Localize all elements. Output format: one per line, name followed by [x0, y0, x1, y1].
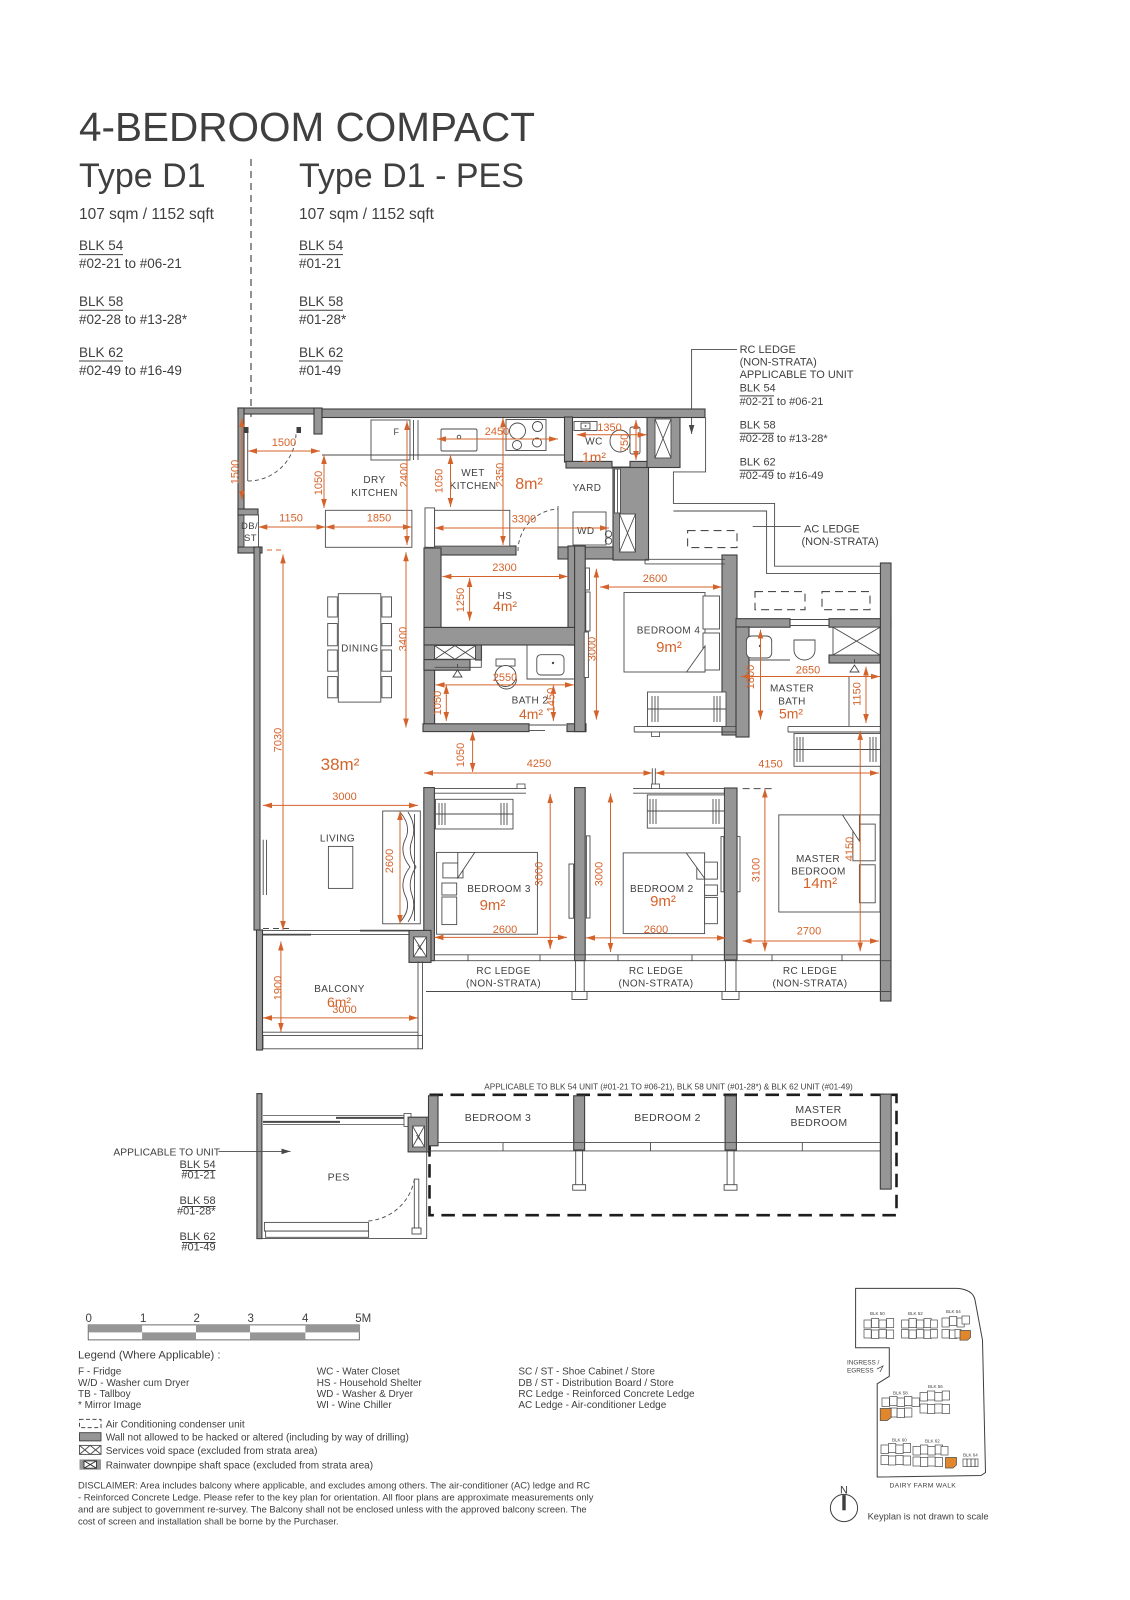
svg-text:SC / ST - Shoe Cabinet / Store: SC / ST - Shoe Cabinet / Store — [518, 1367, 655, 1378]
svg-text:BLK 54: BLK 54 — [79, 238, 124, 253]
svg-text:14m²: 14m² — [803, 875, 837, 892]
svg-text:AC Ledge - Air-conditioner Led: AC Ledge - Air-conditioner Ledge — [518, 1400, 666, 1411]
svg-text:MASTER: MASTER — [795, 1104, 841, 1116]
svg-text:BLK 54: BLK 54 — [299, 238, 344, 253]
svg-text:107 sqm / 1152 sqft: 107 sqm / 1152 sqft — [299, 206, 435, 223]
svg-text:3: 3 — [248, 1313, 254, 1325]
svg-text:(NON-STRATA): (NON-STRATA) — [773, 979, 848, 990]
svg-text:WD - Washer & Dryer: WD - Washer & Dryer — [317, 1389, 414, 1400]
svg-text:2400: 2400 — [399, 463, 411, 487]
svg-text:4m²: 4m² — [519, 706, 543, 722]
svg-text:1500: 1500 — [272, 437, 296, 449]
svg-text:#01-49: #01-49 — [299, 363, 341, 378]
svg-text:38m²: 38m² — [321, 755, 360, 774]
svg-text:4250: 4250 — [527, 758, 551, 770]
svg-text:1: 1 — [140, 1313, 146, 1325]
svg-text:4150: 4150 — [758, 759, 782, 771]
svg-text:3000: 3000 — [587, 637, 599, 661]
svg-text:AC LEDGE: AC LEDGE — [804, 524, 860, 536]
svg-text:9m²: 9m² — [650, 893, 676, 910]
svg-text:LIVING: LIVING — [320, 834, 355, 845]
svg-text:BLK 60: BLK 60 — [892, 1438, 907, 1443]
svg-text:BLK 62: BLK 62 — [299, 345, 343, 360]
svg-text:4: 4 — [302, 1313, 309, 1325]
svg-text:BLK 54: BLK 54 — [740, 383, 776, 395]
svg-text:2600: 2600 — [384, 849, 396, 873]
svg-text:ST: ST — [244, 533, 257, 544]
svg-text:(NON-STRATA): (NON-STRATA) — [466, 979, 541, 990]
svg-text:2700: 2700 — [797, 926, 821, 938]
svg-text:2600: 2600 — [493, 924, 517, 936]
svg-text:KITCHEN: KITCHEN — [450, 481, 497, 492]
svg-text:3400: 3400 — [398, 627, 410, 651]
svg-text:INGRESS /: INGRESS / — [847, 1360, 880, 1367]
svg-text:750: 750 — [619, 434, 631, 452]
svg-text:#01-49: #01-49 — [181, 1242, 215, 1254]
svg-text:#01-28*: #01-28* — [299, 312, 347, 327]
svg-text:#01-28*: #01-28* — [177, 1206, 216, 1218]
svg-text:BLK 58: BLK 58 — [299, 294, 343, 309]
svg-text:BEDROOM 3: BEDROOM 3 — [465, 1112, 532, 1124]
svg-text:1050: 1050 — [313, 471, 325, 495]
svg-text:#02-28 to #13-28*: #02-28 to #13-28* — [79, 312, 188, 327]
svg-text:APPLICABLE TO UNIT: APPLICABLE TO UNIT — [740, 369, 854, 381]
svg-text:DINING: DINING — [341, 644, 378, 655]
svg-text:BLK 62: BLK 62 — [925, 1439, 940, 1444]
svg-text:3000: 3000 — [332, 791, 356, 803]
svg-text:(NON-STRATA): (NON-STRATA) — [740, 357, 817, 369]
svg-text:1250: 1250 — [455, 588, 467, 612]
svg-text:#01-21: #01-21 — [181, 1170, 215, 1182]
svg-text:3000: 3000 — [594, 862, 606, 886]
svg-text:1850: 1850 — [367, 513, 391, 525]
svg-text:#02-21 to #06-21: #02-21 to #06-21 — [740, 396, 824, 408]
svg-text:HS - Household Shelter: HS - Household Shelter — [317, 1378, 423, 1389]
svg-text:1050: 1050 — [455, 743, 467, 767]
svg-text:9m²: 9m² — [480, 897, 506, 914]
svg-text:1500: 1500 — [230, 460, 242, 484]
svg-text:F: F — [394, 427, 400, 437]
svg-text:#02-21 to #06-21: #02-21 to #06-21 — [79, 256, 182, 271]
svg-text:2450: 2450 — [485, 426, 509, 438]
svg-text:1350: 1350 — [597, 422, 621, 434]
svg-text:1m²: 1m² — [582, 449, 606, 465]
svg-text:1050: 1050 — [434, 469, 446, 493]
svg-text:X: X — [416, 1135, 421, 1142]
svg-text:KITCHEN: KITCHEN — [351, 488, 398, 499]
svg-text:9m²: 9m² — [656, 639, 682, 656]
svg-text:BLK 50: BLK 50 — [870, 1311, 885, 1316]
svg-text:EGRESS: EGRESS — [847, 1368, 874, 1375]
svg-text:RC LEDGE: RC LEDGE — [476, 966, 530, 977]
svg-text:BEDROOM 4: BEDROOM 4 — [637, 626, 701, 637]
svg-text:5M: 5M — [355, 1313, 371, 1325]
svg-text:(NON-STRATA): (NON-STRATA) — [619, 979, 694, 990]
svg-text:BLK 58: BLK 58 — [893, 1391, 908, 1396]
svg-text:Type D1 - PES: Type D1 - PES — [299, 157, 524, 195]
svg-text:N: N — [840, 1485, 848, 1497]
svg-text:BLK 52: BLK 52 — [908, 1311, 923, 1316]
svg-text:YARD: YARD — [573, 483, 602, 494]
svg-text:DB/: DB/ — [241, 521, 258, 532]
svg-text:1150: 1150 — [279, 513, 303, 525]
svg-text:2600: 2600 — [644, 924, 668, 936]
svg-text:3000: 3000 — [534, 862, 546, 886]
svg-text:BEDROOM: BEDROOM — [790, 1117, 847, 1129]
svg-text:WC - Water Closet: WC - Water Closet — [317, 1367, 400, 1378]
svg-text:PES: PES — [328, 1172, 350, 1184]
svg-text:RC LEDGE: RC LEDGE — [783, 966, 837, 977]
svg-text:DRY: DRY — [363, 475, 385, 486]
svg-text:1050: 1050 — [432, 691, 444, 715]
svg-text:4-BEDROOM COMPACT: 4-BEDROOM COMPACT — [79, 104, 535, 150]
svg-text:WI - Wine Chiller: WI - Wine Chiller — [317, 1400, 393, 1411]
svg-text:* Mirror Image: * Mirror Image — [78, 1400, 142, 1411]
svg-text:107 sqm / 1152 sqft: 107 sqm / 1152 sqft — [79, 206, 215, 223]
svg-text:2600: 2600 — [643, 573, 667, 585]
svg-text:Keyplan is not drawn to scale: Keyplan is not drawn to scale — [868, 1512, 989, 1522]
svg-text:Type D1: Type D1 — [79, 157, 206, 195]
svg-text:#02-49 to #16-49: #02-49 to #16-49 — [740, 470, 824, 482]
svg-text:WC: WC — [585, 437, 602, 448]
svg-text:Legend (Where Applicable) :: Legend (Where Applicable) : — [78, 1350, 221, 1362]
svg-text:BLK 64: BLK 64 — [963, 1453, 978, 1458]
svg-text:3300: 3300 — [512, 514, 536, 526]
svg-text:5m²: 5m² — [779, 706, 803, 722]
svg-text:RC LEDGE: RC LEDGE — [740, 344, 796, 356]
svg-text:BLK 58: BLK 58 — [740, 420, 776, 432]
svg-text:BLK 56: BLK 56 — [928, 1384, 943, 1389]
svg-text:#01-21: #01-21 — [299, 256, 341, 271]
svg-text:2650: 2650 — [796, 665, 820, 677]
svg-text:BEDROOM 2: BEDROOM 2 — [634, 1112, 701, 1124]
svg-text:APPLICABLE TO BLK 54 UNIT (#01: APPLICABLE TO BLK 54 UNIT (#01-21 TO #06… — [484, 1083, 853, 1092]
svg-text:1450: 1450 — [546, 688, 558, 712]
svg-text:2350: 2350 — [495, 463, 507, 487]
svg-text:and are subject to government: and are subject to government re-survey.… — [78, 1504, 587, 1515]
svg-text:DAIRY FARM WALK: DAIRY FARM WALK — [889, 1483, 956, 1490]
svg-text:TB - Tallboy: TB - Tallboy — [78, 1389, 131, 1400]
svg-text:Services void space (excluded: Services void space (excluded from strat… — [106, 1446, 318, 1457]
svg-text:BLK 58: BLK 58 — [79, 294, 123, 309]
svg-text:(NON-STRATA): (NON-STRATA) — [802, 536, 879, 548]
svg-text:X: X — [417, 945, 422, 952]
svg-text:Air Conditioning condenser uni: Air Conditioning condenser unit — [106, 1419, 245, 1430]
svg-text:- Reinforced Concrete Ledge. P: - Reinforced Concrete Ledge. Please refe… — [78, 1492, 594, 1503]
svg-text:BLK 62: BLK 62 — [740, 457, 776, 469]
svg-text:0: 0 — [86, 1313, 92, 1325]
svg-text:F - Fridge: F - Fridge — [78, 1367, 122, 1378]
svg-text:8m²: 8m² — [515, 476, 543, 493]
svg-text:RC Ledge - Reinforced Concrete: RC Ledge - Reinforced Concrete Ledge — [518, 1389, 695, 1400]
svg-text:2550: 2550 — [493, 672, 517, 684]
svg-text:BLK 62: BLK 62 — [79, 345, 123, 360]
svg-text:3100: 3100 — [751, 858, 763, 882]
svg-text:W/D - Washer cum Dryer: W/D - Washer cum Dryer — [78, 1378, 190, 1389]
svg-text:DISCLAIMER: Area includes balc: DISCLAIMER: Area includes balcony where … — [78, 1480, 590, 1491]
svg-text:#02-49 to #16-49: #02-49 to #16-49 — [79, 363, 182, 378]
svg-text:APPLICABLE TO UNIT: APPLICABLE TO UNIT — [113, 1147, 220, 1158]
svg-text:2: 2 — [194, 1313, 200, 1325]
svg-text:BATH 2: BATH 2 — [512, 696, 549, 707]
svg-text:BEDROOM 3: BEDROOM 3 — [467, 884, 531, 895]
svg-text:cost of screen and installatio: cost of screen and installation shall be… — [78, 1516, 339, 1527]
svg-text:4m²: 4m² — [493, 598, 517, 614]
svg-text:DB / ST - Distribution Board /: DB / ST - Distribution Board / Store — [518, 1378, 674, 1389]
svg-text:#02-28 to #13-28*: #02-28 to #13-28* — [740, 433, 829, 445]
svg-text:BLK 54: BLK 54 — [946, 1309, 961, 1314]
svg-text:Rainwater downpipe shaft space: Rainwater downpipe shaft space (excluded… — [106, 1460, 373, 1471]
svg-text:MASTER: MASTER — [770, 684, 814, 695]
svg-text:7030: 7030 — [273, 728, 285, 752]
svg-text:3000: 3000 — [332, 1004, 356, 1016]
svg-text:MASTER: MASTER — [796, 854, 840, 865]
svg-text:RC LEDGE: RC LEDGE — [629, 966, 683, 977]
svg-text:4150: 4150 — [844, 837, 856, 861]
svg-text:1900: 1900 — [273, 976, 285, 1000]
svg-text:WET: WET — [461, 468, 484, 479]
svg-text:2300: 2300 — [492, 562, 516, 574]
svg-text:1150: 1150 — [852, 682, 864, 706]
svg-text:Wall not allowed to be hacked: Wall not allowed to be hacked or altered… — [106, 1433, 409, 1444]
